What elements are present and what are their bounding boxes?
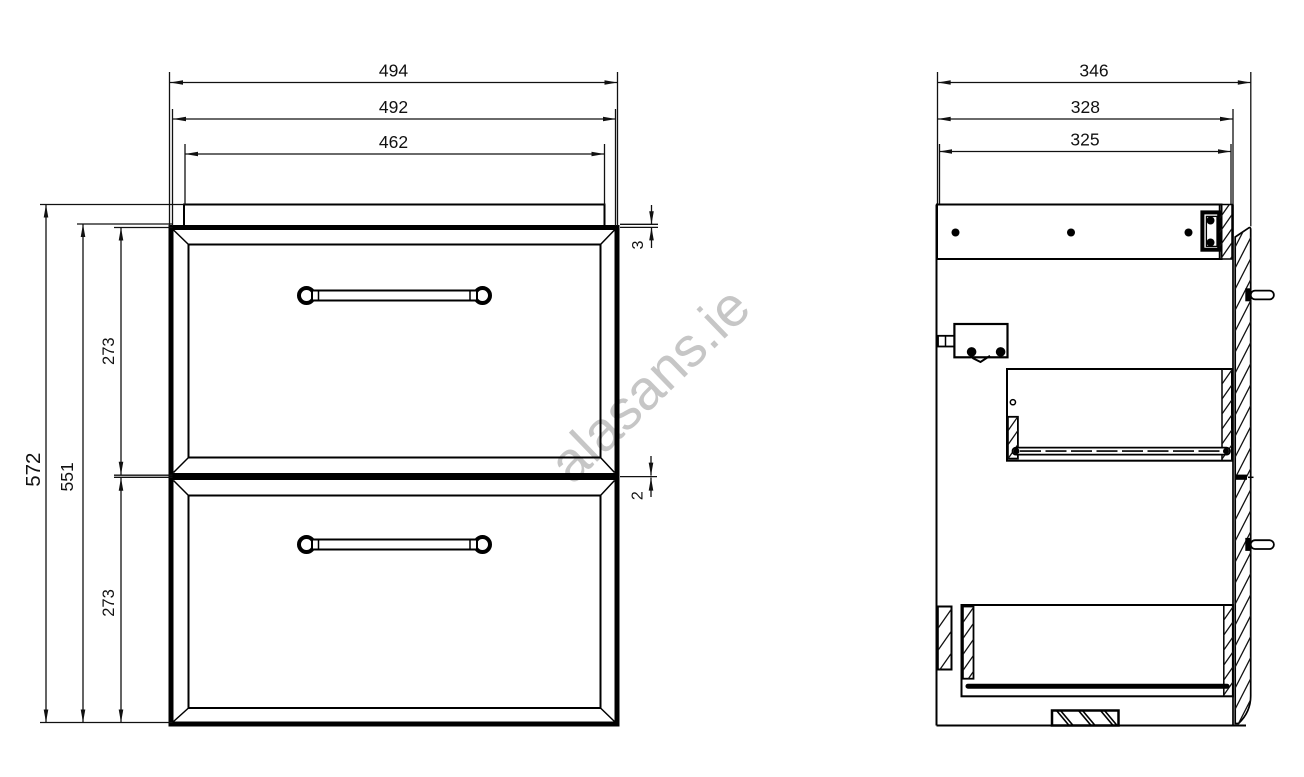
svg-text:494: 494 bbox=[379, 61, 408, 81]
svg-text:346: 346 bbox=[1079, 61, 1108, 81]
svg-text:2: 2 bbox=[629, 491, 646, 500]
svg-text:325: 325 bbox=[1070, 130, 1099, 150]
svg-text:551: 551 bbox=[57, 462, 77, 491]
svg-text:alasans.ie: alasans.ie bbox=[537, 274, 762, 494]
svg-text:3: 3 bbox=[630, 240, 647, 249]
svg-text:273: 273 bbox=[100, 589, 118, 617]
svg-text:273: 273 bbox=[100, 337, 118, 365]
svg-text:462: 462 bbox=[379, 132, 408, 152]
svg-text:572: 572 bbox=[22, 453, 45, 487]
svg-text:492: 492 bbox=[379, 97, 408, 117]
svg-text:328: 328 bbox=[1071, 97, 1100, 117]
